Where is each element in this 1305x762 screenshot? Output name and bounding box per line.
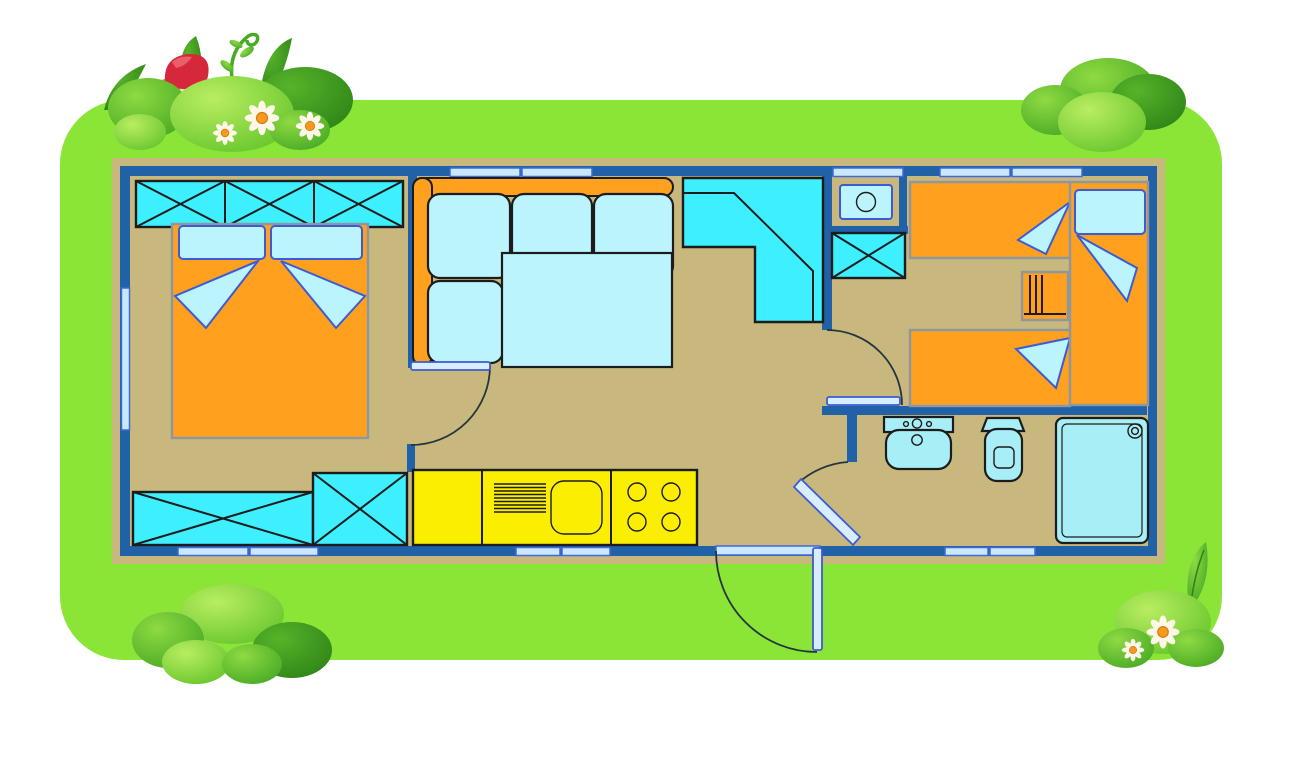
window: [250, 548, 318, 556]
dining-table: [502, 253, 672, 367]
pillow: [1075, 190, 1145, 234]
window: [562, 548, 610, 556]
ladder-shelf: [1022, 272, 1068, 320]
triple-wardrobe: [136, 181, 403, 227]
bush-blob: [1058, 92, 1146, 152]
window: [945, 548, 988, 556]
bush-blob: [114, 114, 166, 150]
water-heater-niche: [840, 185, 892, 219]
sofa-cushion: [428, 194, 510, 278]
window: [450, 168, 520, 177]
bush-top-left: [104, 34, 353, 152]
window: [1012, 168, 1082, 177]
shower: [1056, 418, 1148, 543]
kitchen: [413, 470, 697, 545]
window: [178, 548, 248, 556]
storage-cabinet: [313, 473, 407, 545]
bush-blob: [162, 640, 230, 684]
window: [516, 548, 560, 556]
entrance-threshold: [716, 546, 820, 555]
toilet: [982, 418, 1024, 481]
window: [940, 168, 1010, 177]
window: [990, 548, 1035, 556]
storage-cabinet: [832, 233, 905, 278]
kitchen-worktop: [413, 470, 697, 545]
washbasin: [884, 417, 953, 469]
sofa-cushion: [428, 281, 503, 363]
window: [833, 168, 903, 177]
window: [122, 288, 130, 430]
pillow: [271, 226, 362, 259]
bush-blob: [222, 644, 282, 684]
storage-bench: [133, 492, 313, 545]
scene-canvas: [0, 0, 1305, 762]
window: [522, 168, 592, 177]
floor-plan-illustration: [0, 0, 1305, 762]
pillow: [179, 226, 265, 259]
